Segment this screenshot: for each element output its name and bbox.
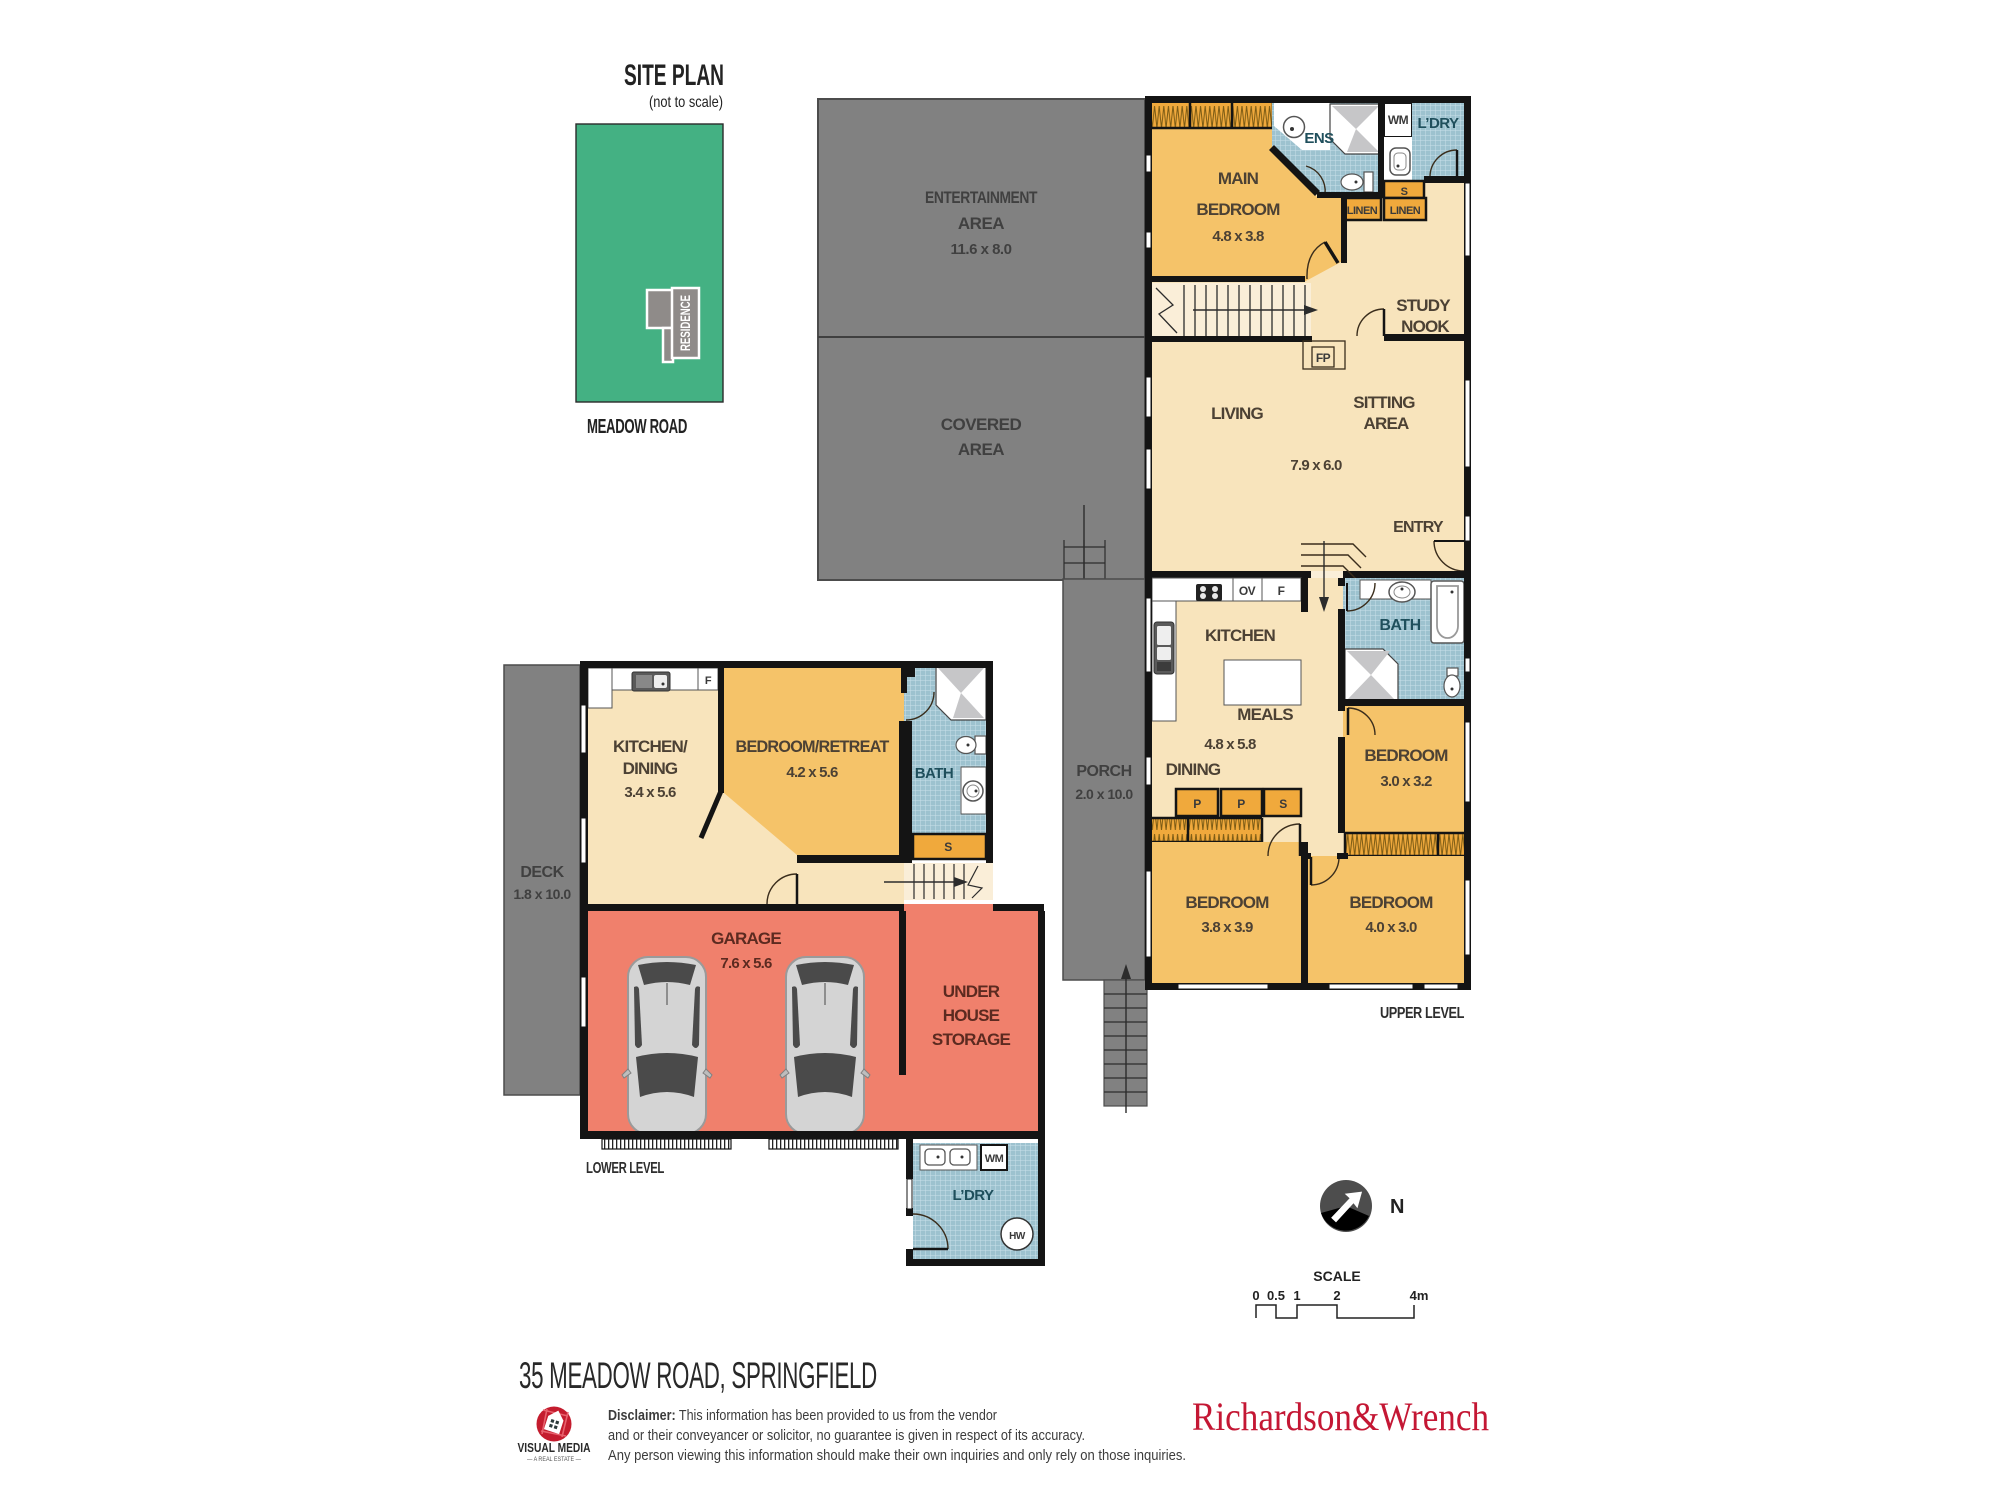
svg-text:STORAGE: STORAGE [932,1030,1011,1049]
svg-text:0: 0 [1252,1288,1259,1303]
svg-text:7.6 x 5.6: 7.6 x 5.6 [720,955,772,972]
svg-text:BATH: BATH [1379,617,1420,634]
svg-text:and or their conveyancer or so: and or their conveyancer or solicitor, n… [608,1428,1085,1444]
svg-text:2: 2 [1333,1288,1340,1303]
svg-text:PORCH: PORCH [1076,763,1131,780]
svg-text:Any person viewing this inform: Any person viewing this information shou… [608,1448,1186,1464]
svg-text:F: F [1278,584,1285,598]
svg-text:4.8 x 5.8: 4.8 x 5.8 [1204,736,1256,753]
svg-text:S: S [944,840,952,854]
svg-text:AREA: AREA [958,214,1004,233]
svg-text:DINING: DINING [623,759,678,778]
svg-text:BEDROOM: BEDROOM [1349,893,1433,912]
svg-text:2.0 x 10.0: 2.0 x 10.0 [1075,786,1133,802]
svg-text:DECK: DECK [520,864,564,881]
svg-text:SITE PLAN: SITE PLAN [624,59,724,92]
svg-text:DINING: DINING [1166,760,1221,779]
svg-text:GARAGE: GARAGE [711,929,781,948]
svg-text:COVERED: COVERED [941,415,1022,434]
svg-text:LINEN: LINEN [1347,205,1378,217]
svg-text:4m: 4m [1410,1288,1429,1303]
svg-text:UNDER: UNDER [943,982,1000,1001]
svg-text:RESIDENCE: RESIDENCE [677,295,693,351]
svg-text:P: P [1193,797,1201,811]
svg-text:4.0 x 3.0: 4.0 x 3.0 [1365,919,1417,936]
svg-text:4.2 x 5.6: 4.2 x 5.6 [786,764,838,781]
svg-text:LINEN: LINEN [1390,205,1421,217]
svg-text:11.6 x 8.0: 11.6 x 8.0 [951,241,1012,258]
svg-text:4.8 x 3.8: 4.8 x 3.8 [1212,228,1264,245]
svg-text:HW: HW [1009,1231,1026,1242]
svg-text:KITCHEN: KITCHEN [1205,626,1275,645]
svg-text:SITTING: SITTING [1353,393,1415,412]
svg-text:BATH: BATH [915,765,954,782]
svg-text:VISUAL MEDIA: VISUAL MEDIA [518,1440,591,1455]
svg-text:3.0 x 3.2: 3.0 x 3.2 [1380,773,1432,790]
svg-text:S: S [1401,186,1408,198]
svg-text:L’DRY: L’DRY [952,1187,994,1204]
svg-text:WM: WM [1388,113,1409,127]
svg-text:BEDROOM/RETREAT: BEDROOM/RETREAT [736,737,890,756]
svg-text:7.9 x 6.0: 7.9 x 6.0 [1290,457,1342,474]
svg-text:FP: FP [1316,351,1331,365]
svg-text:MEALS: MEALS [1237,705,1293,724]
svg-text:LOWER LEVEL: LOWER LEVEL [586,1160,664,1177]
svg-text:1: 1 [1293,1288,1300,1303]
svg-text:STUDY: STUDY [1396,296,1451,315]
svg-text:Disclaimer: This information h: Disclaimer: This information has been pr… [608,1408,997,1424]
svg-text:S: S [1279,797,1287,811]
svg-text:Richardson&Wrench: Richardson&Wrench [1192,1394,1489,1439]
svg-text:P: P [1237,797,1245,811]
svg-text:ENS: ENS [1304,130,1334,147]
svg-text:ENTRY: ENTRY [1393,519,1444,536]
svg-text:AREA: AREA [958,440,1004,459]
svg-text:— A REAL ESTATE —: — A REAL ESTATE — [527,1457,581,1463]
svg-text:ENTERTAINMENT: ENTERTAINMENT [925,188,1038,207]
svg-text:NOOK: NOOK [1401,317,1450,336]
svg-text:3.8 x 3.9: 3.8 x 3.9 [1201,919,1253,936]
svg-text:KITCHEN/: KITCHEN/ [613,737,688,756]
svg-text:OV: OV [1239,584,1256,598]
svg-text:BEDROOM: BEDROOM [1185,893,1269,912]
svg-text:AREA: AREA [1364,414,1409,433]
svg-text:N: N [1390,1196,1404,1218]
svg-text:(not to scale): (not to scale) [649,94,723,111]
svg-text:L’DRY: L’DRY [1417,115,1459,132]
svg-text:UPPER LEVEL: UPPER LEVEL [1380,1005,1464,1022]
svg-text:BEDROOM: BEDROOM [1196,200,1280,219]
svg-text:3.4 x 5.6: 3.4 x 5.6 [624,784,676,801]
svg-text:SCALE: SCALE [1313,1268,1360,1284]
svg-text:35 MEADOW ROAD, SPRINGFIELD: 35 MEADOW ROAD, SPRINGFIELD [519,1355,877,1396]
svg-text:MAIN: MAIN [1218,169,1259,188]
svg-text:BEDROOM: BEDROOM [1364,746,1448,765]
svg-text:1.8 x 10.0: 1.8 x 10.0 [513,886,571,902]
svg-text:F: F [705,675,712,687]
svg-text:MEADOW ROAD: MEADOW ROAD [587,416,687,438]
svg-text:0.5: 0.5 [1267,1288,1285,1303]
svg-text:LIVING: LIVING [1211,404,1263,423]
svg-text:WM: WM [985,1153,1004,1165]
svg-text:HOUSE: HOUSE [943,1006,1000,1025]
